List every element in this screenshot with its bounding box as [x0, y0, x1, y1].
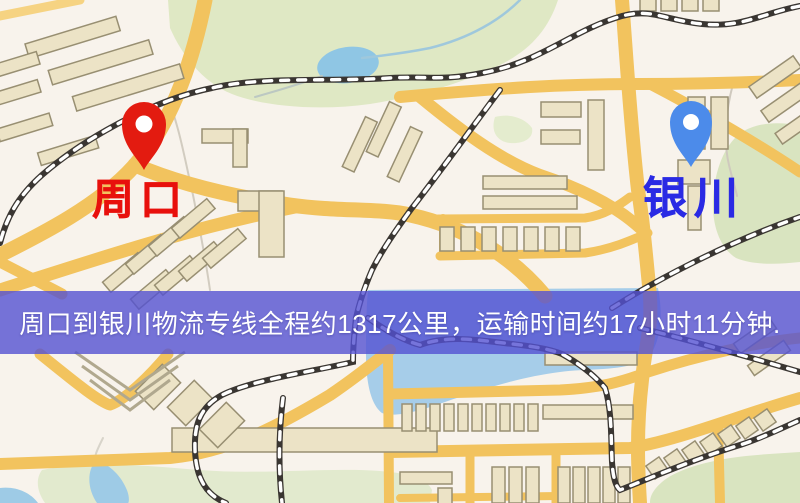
origin-pin-body — [122, 102, 166, 170]
origin-pin-icon[interactable] — [118, 96, 170, 176]
map-view: 周口到银川物流专线全程约1317公里，运输时间约17小时11分钟. 周口 银川 — [0, 0, 800, 503]
origin-pin-hole — [136, 116, 153, 133]
route-info-banner: 周口到银川物流专线全程约1317公里，运输时间约17小时11分钟. — [0, 291, 800, 354]
destination-pin-body — [670, 101, 712, 167]
route-info-text: 周口到银川物流专线全程约1317公里，运输时间约17小时11分钟. — [19, 304, 780, 341]
destination-pin-hole — [683, 114, 699, 130]
destination-pin-icon[interactable] — [666, 96, 716, 172]
origin-city-label: 周口 — [92, 179, 188, 221]
destination-city-label: 银川 — [643, 177, 745, 221]
map-canvas — [0, 0, 800, 503]
